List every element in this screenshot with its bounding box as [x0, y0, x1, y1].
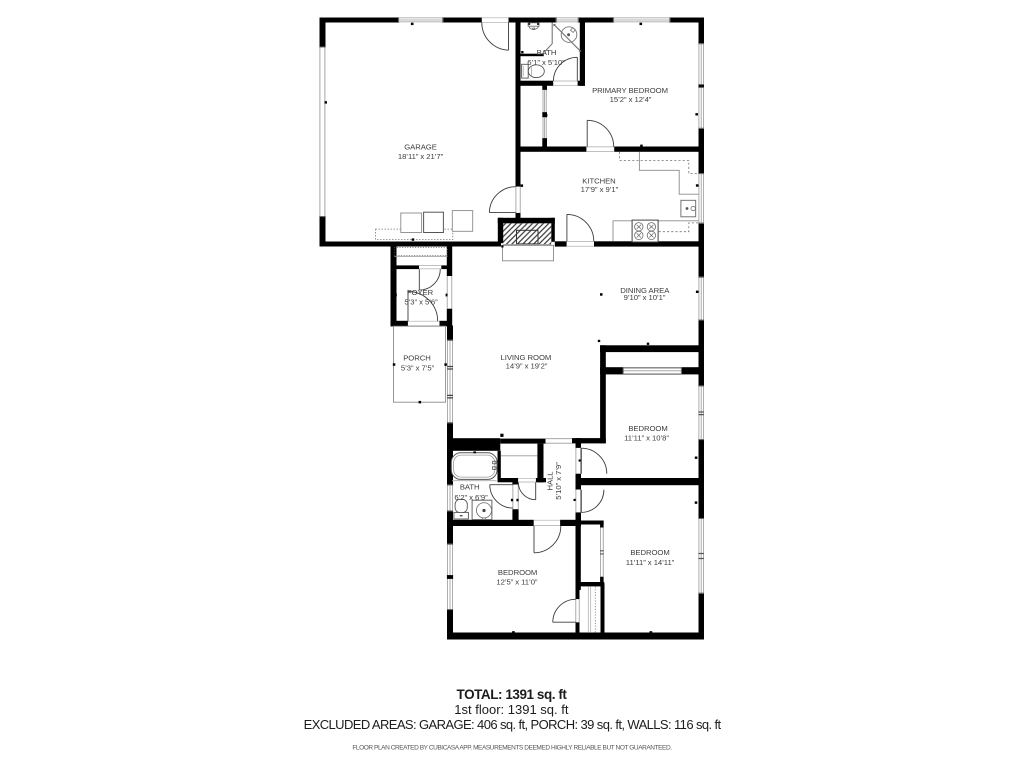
svg-text:5’10” x 7’9”: 5’10” x 7’9” — [554, 462, 563, 500]
svg-text:GARAGE: GARAGE — [404, 143, 437, 152]
svg-text:5’3” x 5’6”: 5’3” x 5’6” — [404, 297, 438, 306]
svg-text:PRIMARY BEDROOM: PRIMARY BEDROOM — [592, 86, 668, 95]
svg-text:BEDROOM: BEDROOM — [498, 568, 537, 577]
svg-text:17’9” x 9’1”: 17’9” x 9’1” — [581, 185, 619, 194]
svg-text:15’2” x 12’4”: 15’2” x 12’4” — [610, 95, 652, 104]
svg-text:FOYER: FOYER — [407, 288, 434, 297]
svg-text:14’9” x 19’2”: 14’9” x 19’2” — [506, 362, 548, 371]
svg-text:KITCHEN: KITCHEN — [582, 176, 615, 185]
svg-text:5’3” x 7’5”: 5’3” x 7’5” — [401, 363, 435, 372]
svg-text:BEDROOM: BEDROOM — [628, 424, 667, 433]
svg-text:9’10” x 10’1”: 9’10” x 10’1” — [624, 293, 666, 302]
svg-text:18’11” x 21’7”: 18’11” x 21’7” — [398, 152, 444, 161]
svg-text:1st floor: 1391 sq. ft: 1st floor: 1391 sq. ft — [454, 702, 569, 717]
svg-text:TOTAL: 1391 sq. ft: TOTAL: 1391 sq. ft — [457, 687, 568, 702]
svg-text:11’11” x 14’11”: 11’11” x 14’11” — [626, 558, 675, 567]
svg-text:6’1” x 5’10”: 6’1” x 5’10” — [527, 58, 565, 67]
svg-text:BATH: BATH — [460, 483, 480, 492]
svg-text:FLOOR PLAN CREATED BY CUBICASA: FLOOR PLAN CREATED BY CUBICASA APP. MEAS… — [352, 744, 672, 751]
svg-text:11’11” x 10’8”: 11’11” x 10’8” — [624, 434, 669, 443]
svg-text:6’2” x 6’9”: 6’2” x 6’9” — [454, 493, 488, 502]
svg-text:12’5” x 11’0”: 12’5” x 11’0” — [496, 577, 538, 586]
svg-text:BEDROOM: BEDROOM — [630, 548, 669, 557]
svg-text:BATH: BATH — [537, 48, 557, 57]
svg-text:PORCH: PORCH — [403, 353, 431, 362]
svg-text:EXCLUDED AREAS: GARAGE: 406 sq: EXCLUDED AREAS: GARAGE: 406 sq. ft, PORC… — [304, 717, 722, 732]
